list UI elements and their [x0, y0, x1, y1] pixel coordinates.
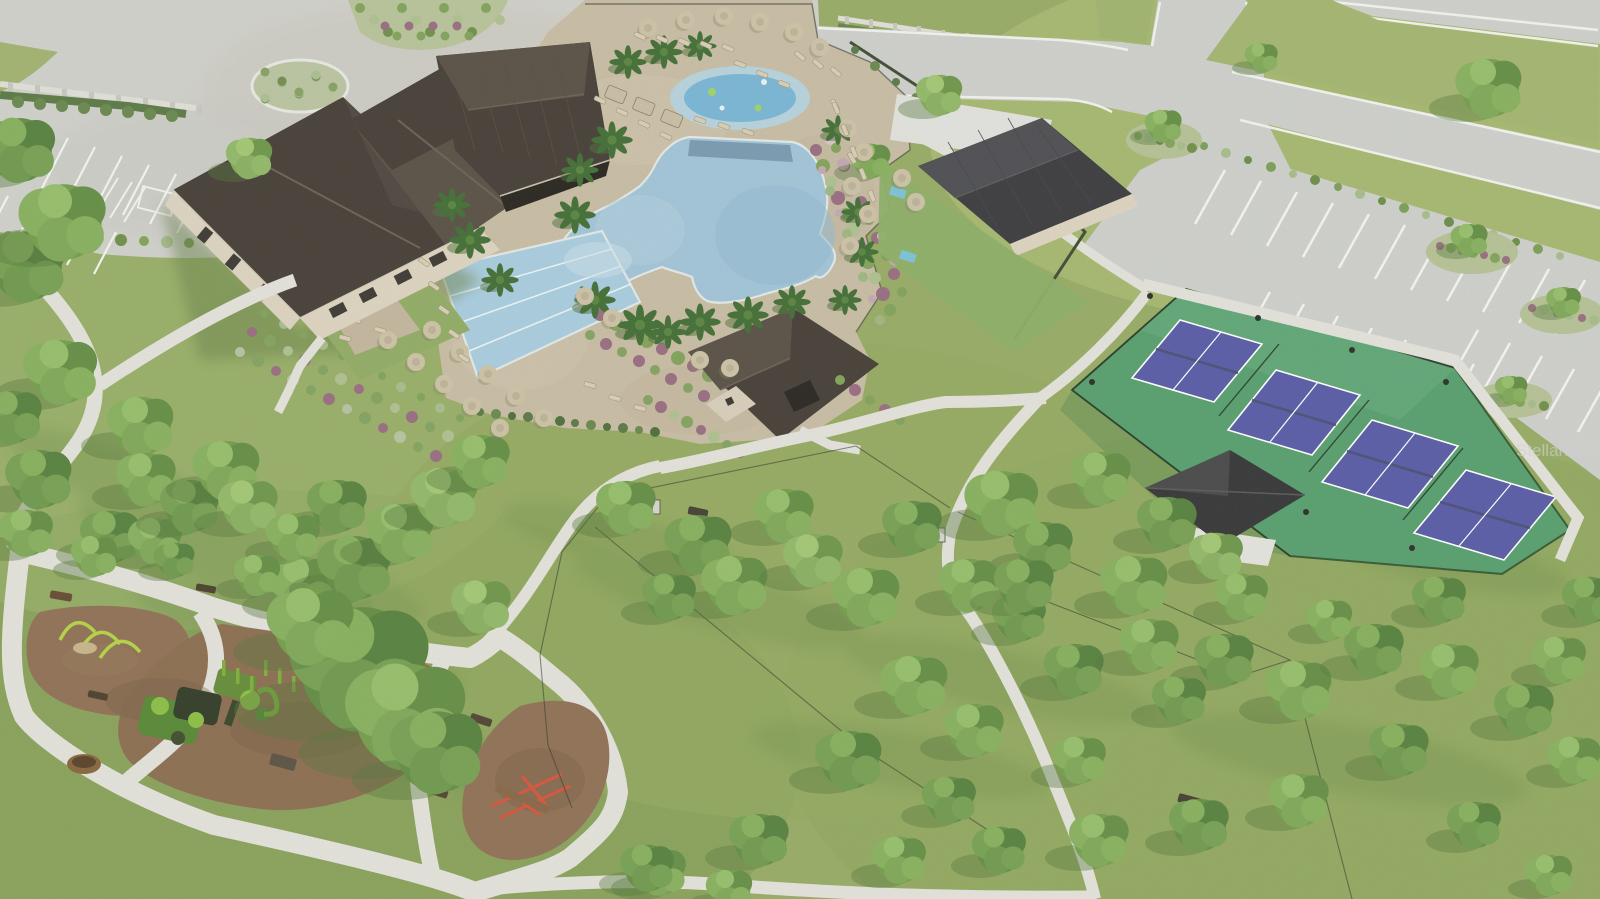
svg-text:StellarMLS: StellarMLS — [1516, 441, 1599, 460]
